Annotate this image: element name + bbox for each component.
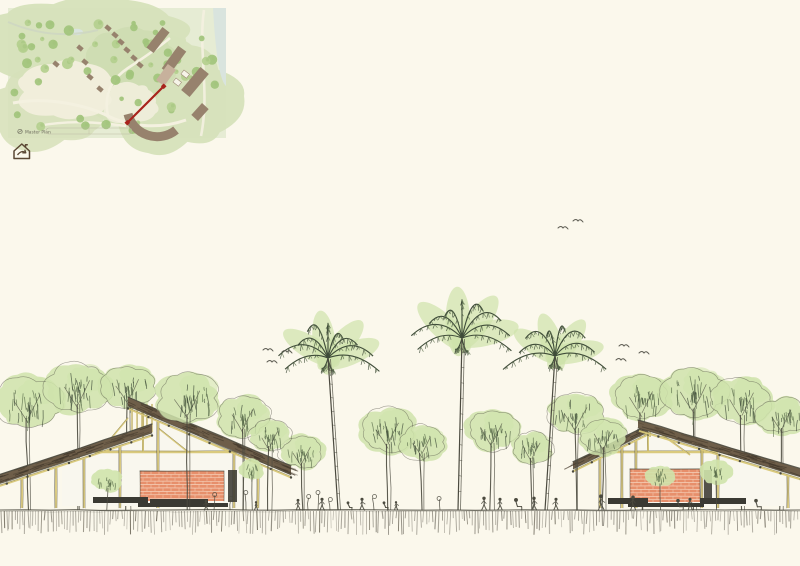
elevation-scene: Master Plan	[0, 0, 800, 566]
map-title-label: Master Plan	[25, 130, 51, 136]
sketch-page: Master Plan	[0, 0, 800, 566]
site-plan-map: Master Plan	[0, 0, 244, 155]
